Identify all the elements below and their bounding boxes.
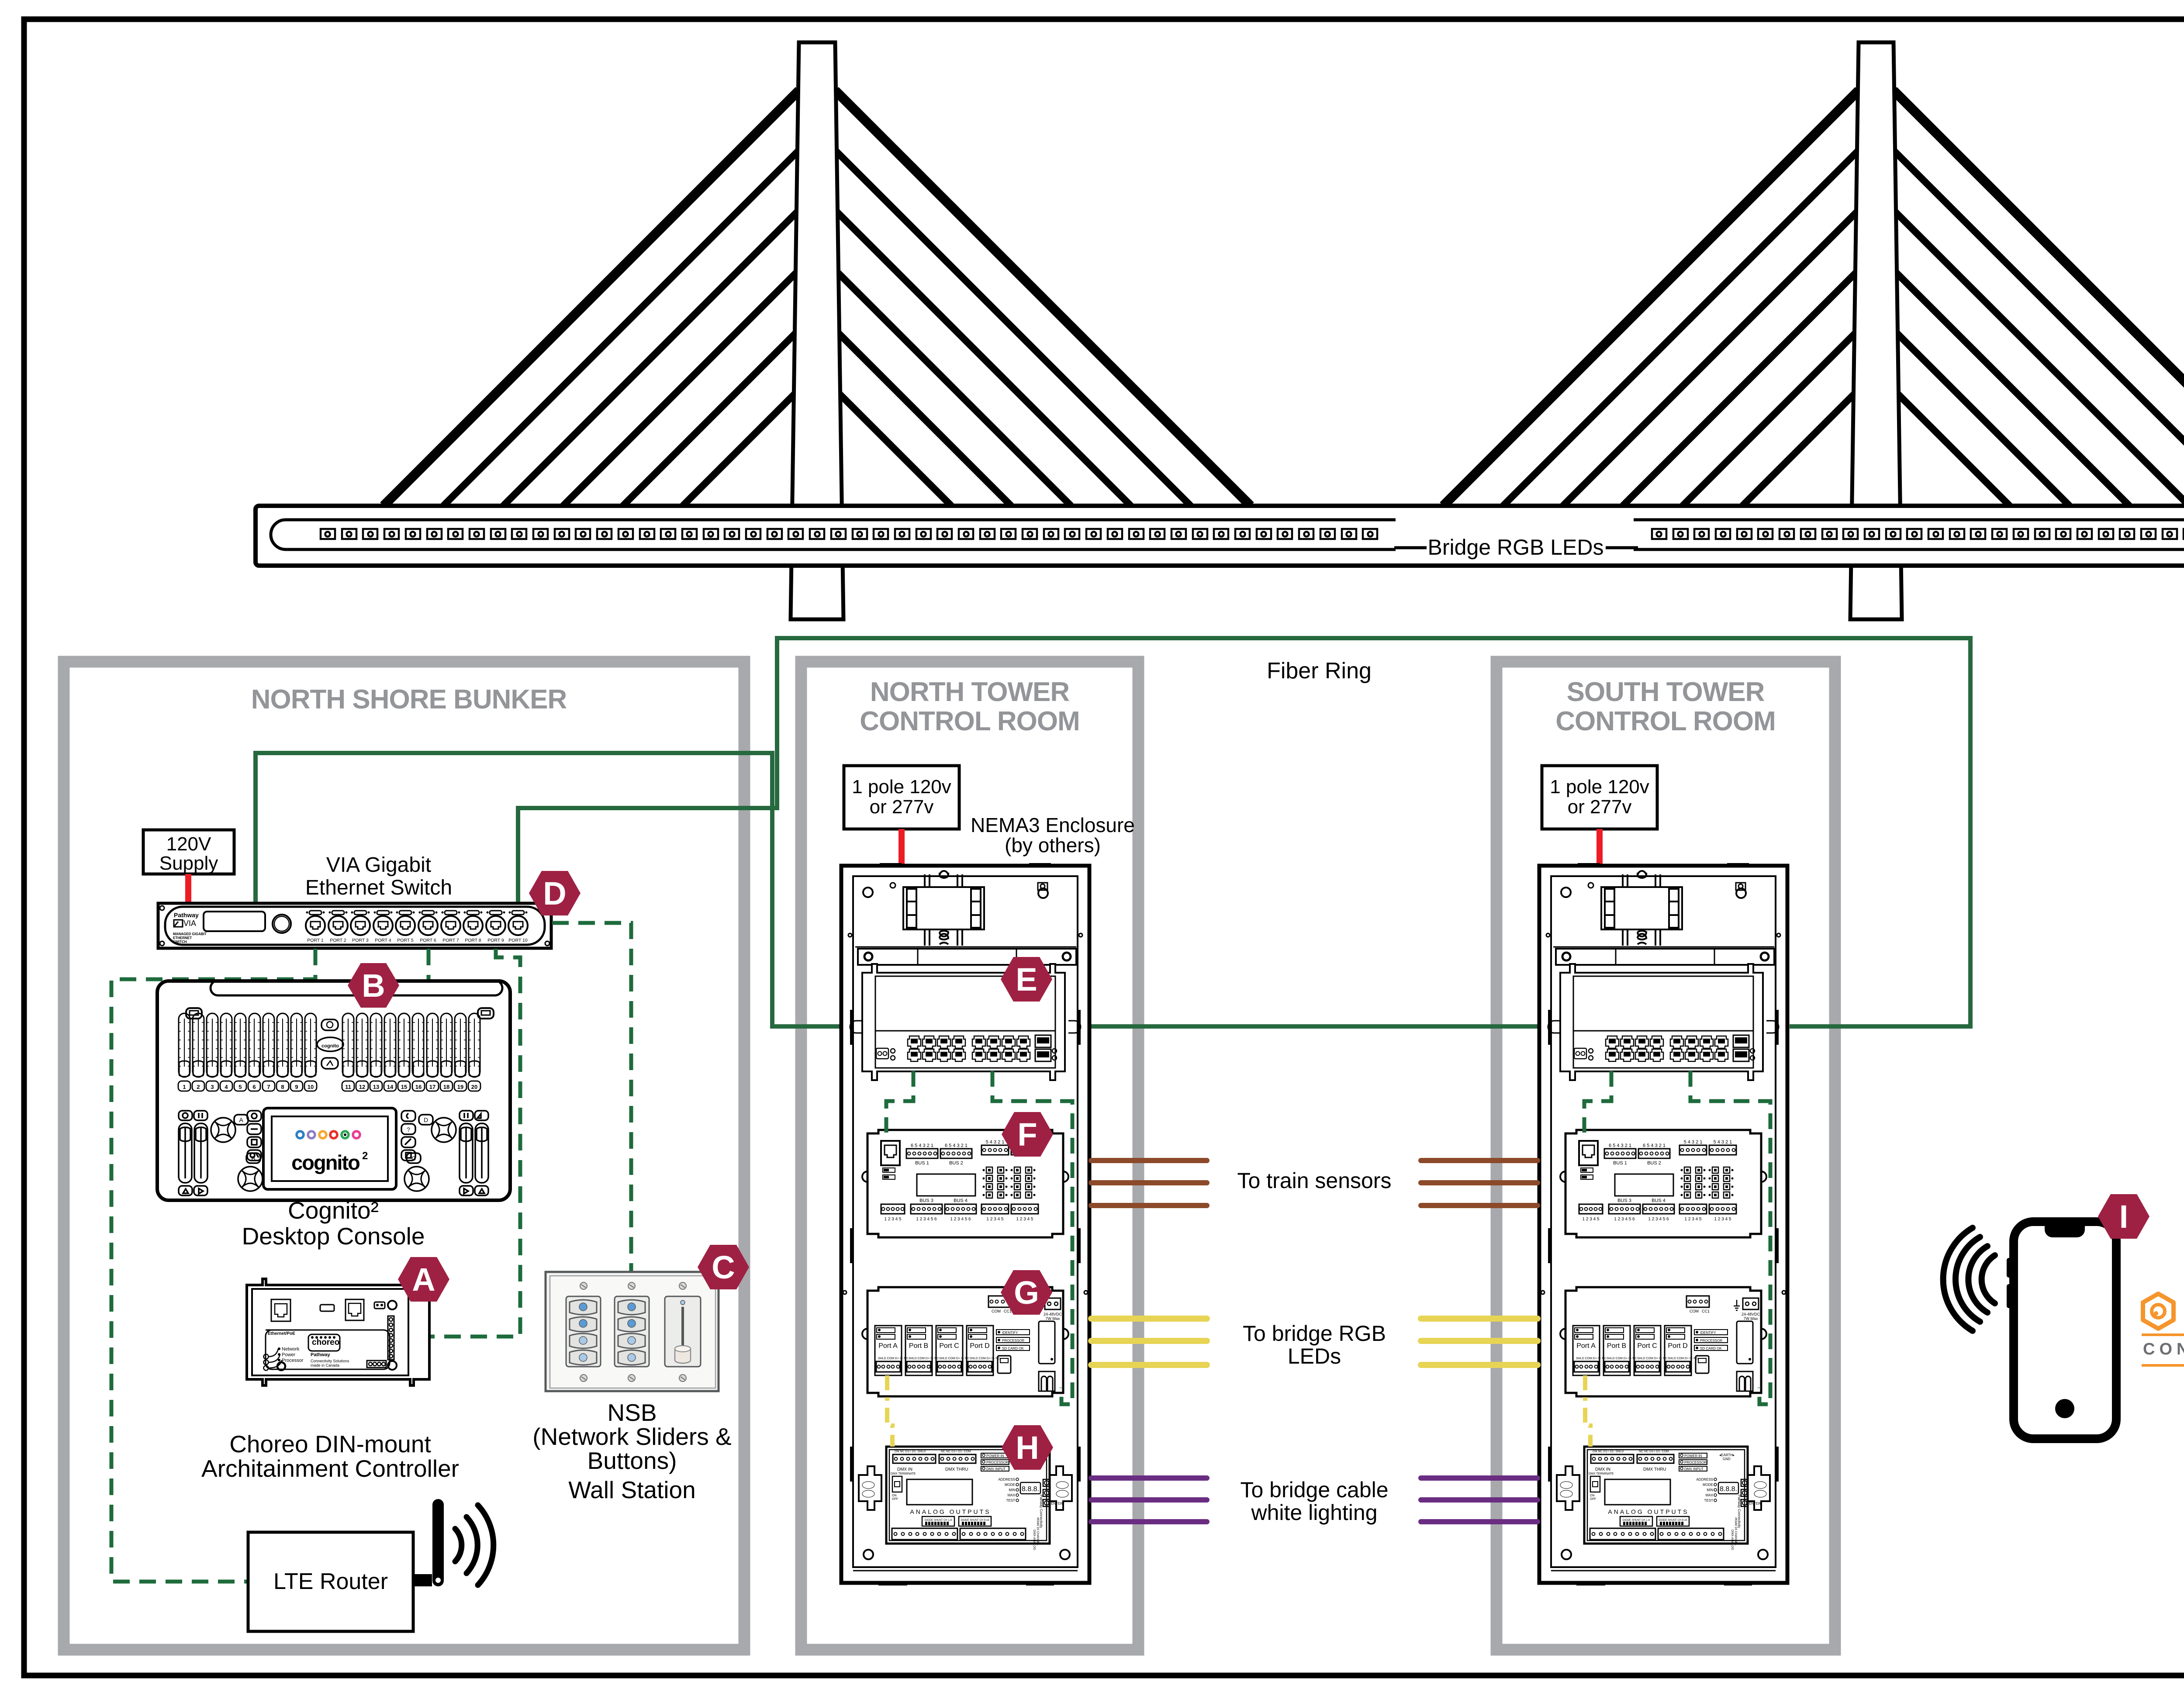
svg-text:9: 9 [295,1084,298,1090]
svg-text:Architainment Controller: Architainment Controller [201,1455,459,1482]
svg-text:SWITCH: SWITCH [173,940,187,944]
svg-text:NEMA3 Enclosure: NEMA3 Enclosure [971,814,1135,836]
svg-text:1: 1 [183,1084,186,1090]
svg-text:19: 19 [457,1084,463,1090]
svg-text:16: 16 [415,1084,422,1090]
svg-text:7: 7 [267,1084,270,1090]
svg-text:ETHERNET: ETHERNET [173,936,192,940]
svg-text:20: 20 [471,1084,477,1090]
svg-text:?: ? [407,1126,410,1133]
svg-text:Power: Power [282,1352,296,1357]
svg-text:10: 10 [308,1084,314,1090]
svg-text:(by others): (by others) [1005,834,1101,857]
svg-text:H: H [1016,1430,1039,1466]
svg-text:Choreo DIN-mount: Choreo DIN-mount [229,1430,431,1458]
svg-text:A: A [412,1261,435,1298]
svg-text:11: 11 [345,1084,351,1090]
svg-text:120V: 120V [166,833,211,855]
svg-text:A: A [239,1116,243,1123]
svg-text:PORT 3: PORT 3 [352,938,369,943]
svg-text:Buttons): Buttons) [587,1447,677,1474]
svg-text:8: 8 [281,1084,284,1090]
svg-text:PORT 2: PORT 2 [330,938,346,943]
svg-text:14: 14 [387,1084,394,1090]
svg-text:17: 17 [429,1084,435,1090]
svg-text:PORT 6: PORT 6 [420,938,436,943]
svg-text:NORTH TOWER: NORTH TOWER [870,677,1069,707]
svg-text:PORT 1: PORT 1 [307,938,324,943]
svg-text:I: I [2119,1199,2129,1235]
svg-text:15: 15 [401,1084,407,1090]
svg-text:B: B [251,1155,255,1162]
svg-text:PORT 10: PORT 10 [508,938,528,943]
svg-text:4: 4 [225,1084,228,1090]
svg-text:C: C [411,1155,416,1162]
svg-text:cognito: cognito [321,1043,339,1049]
svg-text:(Network Sliders &: (Network Sliders & [532,1423,731,1450]
svg-text:Desktop Console: Desktop Console [242,1223,425,1250]
svg-text:5: 5 [238,1084,242,1090]
svg-text:3: 3 [211,1084,214,1090]
svg-text:D: D [543,875,566,912]
svg-text:2: 2 [197,1084,200,1090]
svg-text:VIA: VIA [183,919,196,928]
svg-text:white lighting: white lighting [1251,1500,1377,1525]
svg-text:CONNECTED: CONNECTED [2143,1340,2184,1358]
svg-text:6: 6 [252,1084,256,1090]
svg-text:Ethernet/PoE: Ethernet/PoE [268,1331,295,1336]
svg-text:PORT 8: PORT 8 [465,938,481,943]
svg-text:Wall Station: Wall Station [568,1476,695,1503]
svg-text:or 277v: or 277v [870,796,934,818]
svg-text:1 pole 120v: 1 pole 120v [1550,776,1649,798]
svg-text:SOUTH TOWER: SOUTH TOWER [1567,677,1765,707]
svg-text:C: C [712,1249,735,1285]
svg-text:Pathway: Pathway [174,912,199,919]
svg-text:choreo: choreo [312,1338,339,1347]
svg-text:PORT 4: PORT 4 [375,938,391,943]
svg-text:G: G [1014,1275,1039,1311]
svg-text:PORT 7: PORT 7 [442,938,459,943]
svg-text:NSB: NSB [607,1399,657,1426]
svg-text:Pathway: Pathway [311,1352,331,1357]
svg-text:To train sensors: To train sensors [1237,1168,1392,1193]
svg-text:or 277v: or 277v [1568,796,1632,818]
svg-text:cognito: cognito [291,1151,359,1174]
svg-text:E: E [1016,961,1037,998]
svg-text:PORT 5: PORT 5 [397,938,414,943]
svg-text:Ethernet Switch: Ethernet Switch [305,876,452,899]
svg-text:18: 18 [443,1084,449,1090]
svg-text:B: B [362,967,385,1004]
svg-text:Processor: Processor [282,1358,304,1363]
svg-text:F: F [1017,1116,1037,1153]
svg-text:Cognito²: Cognito² [288,1197,379,1224]
svg-text:1 pole 120v: 1 pole 120v [852,776,951,798]
svg-text:To bridge cable: To bridge cable [1240,1478,1388,1502]
svg-text:MANAGED GIGABIT: MANAGED GIGABIT [173,932,207,936]
svg-text:Supply: Supply [159,853,218,874]
svg-text:2: 2 [362,1150,368,1162]
svg-text:12: 12 [359,1084,365,1090]
svg-text:13: 13 [373,1084,379,1090]
svg-text:Network: Network [282,1347,300,1352]
svg-text:LTE Router: LTE Router [273,1569,388,1594]
svg-text:CONTROL ROOM: CONTROL ROOM [860,706,1080,736]
svg-text:Connectivity Solutions: Connectivity Solutions [311,1359,349,1363]
svg-text:Fiber Ring: Fiber Ring [1267,658,1372,684]
svg-text:To bridge RGB: To bridge RGB [1243,1321,1386,1346]
svg-text:CONTROL ROOM: CONTROL ROOM [1555,706,1776,736]
svg-text:made in Canada: made in Canada [311,1363,339,1368]
svg-text:VIA Gigabit: VIA Gigabit [326,853,431,877]
svg-text:Bridge RGB LEDs: Bridge RGB LEDs [1428,535,1604,560]
svg-text:NORTH SHORE BUNKER: NORTH SHORE BUNKER [251,684,567,715]
svg-text:LEDs: LEDs [1288,1344,1341,1368]
svg-text:PORT 9: PORT 9 [487,938,504,943]
svg-text:D: D [424,1116,428,1123]
